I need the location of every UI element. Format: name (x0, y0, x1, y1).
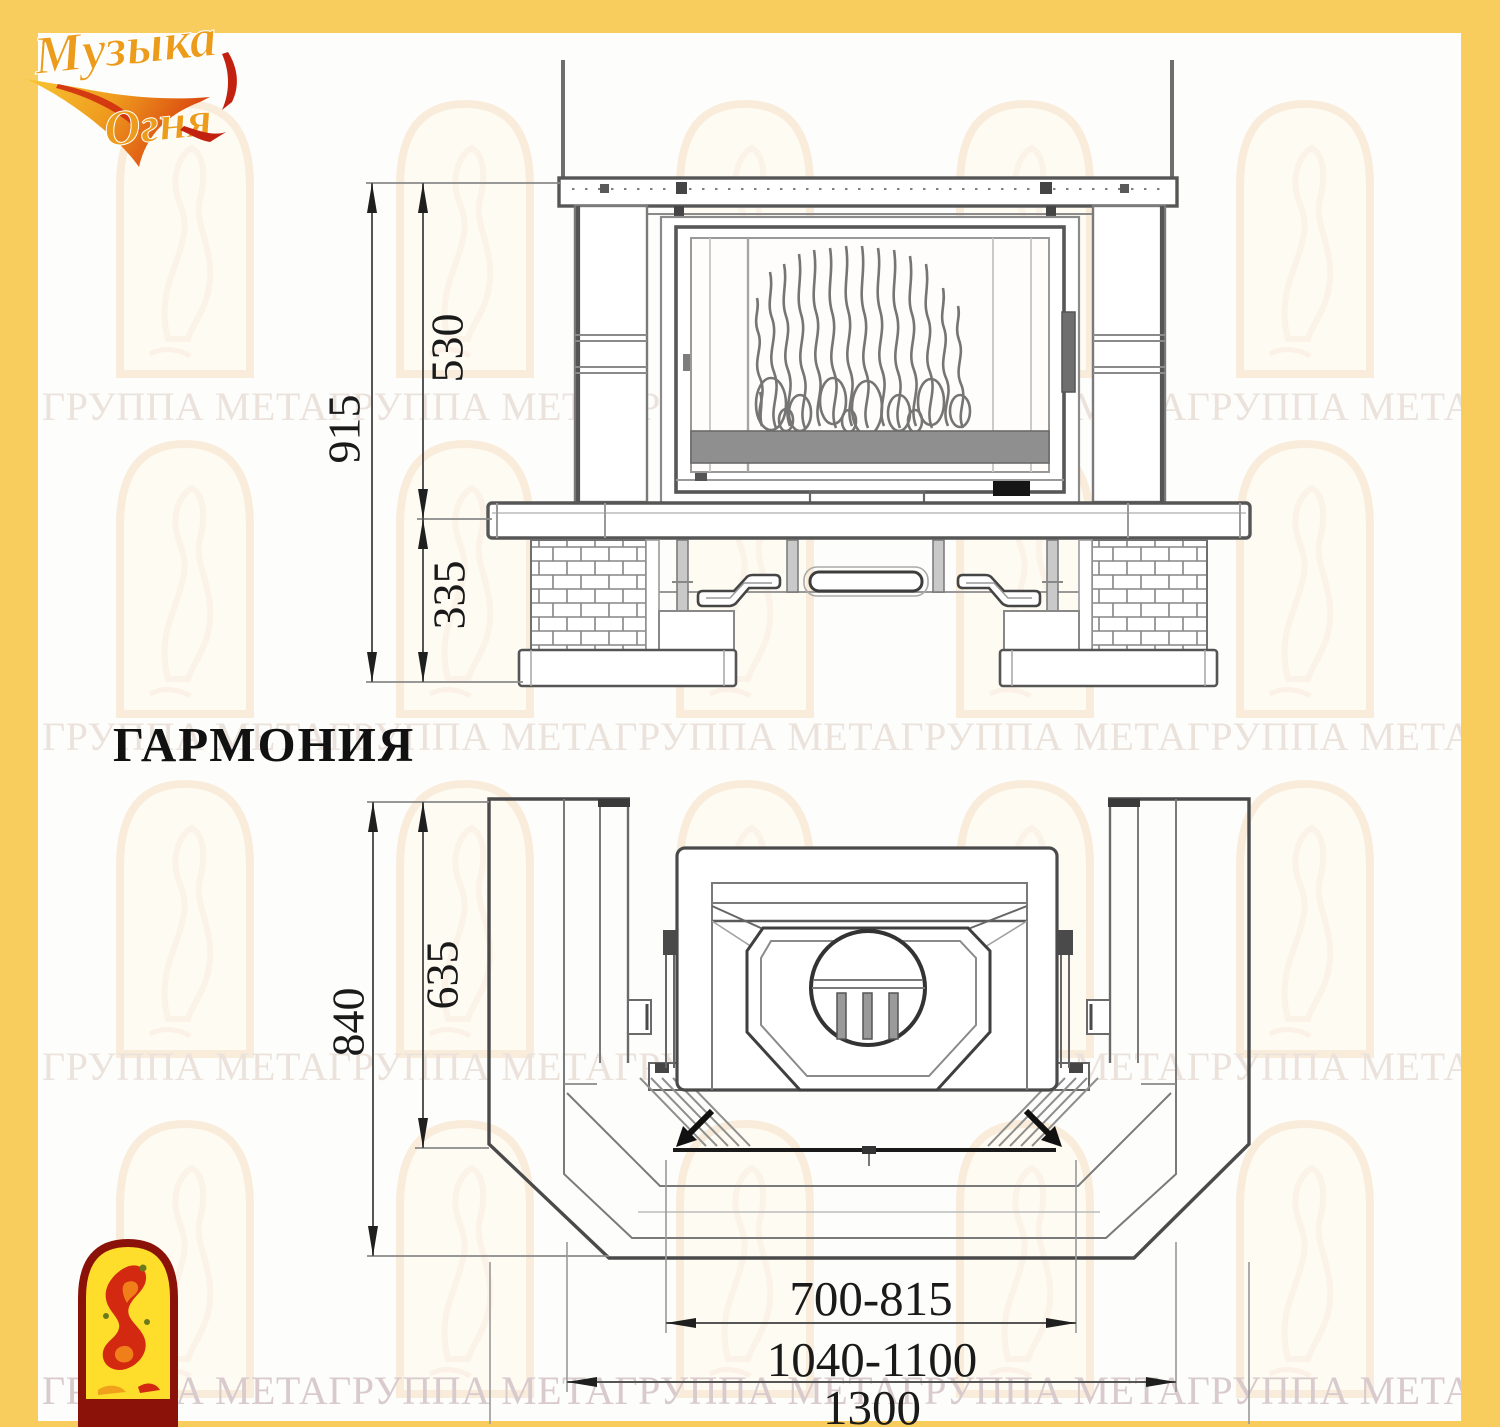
svg-text:635: 635 (417, 941, 468, 1010)
svg-text:ГРУППА МЕТАГРУППА МЕТАГРУППА М: ГРУППА МЕТАГРУППА МЕТАГРУППА МЕТАГРУППА … (42, 1368, 1473, 1413)
svg-text:915: 915 (319, 395, 370, 464)
svg-text:ГАРМОНИЯ: ГАРМОНИЯ (113, 717, 415, 772)
svg-text:700-815: 700-815 (789, 1271, 952, 1326)
svg-text:Огня: Огня (101, 90, 214, 157)
svg-text:1300: 1300 (823, 1380, 921, 1427)
svg-text:1040-1100: 1040-1100 (767, 1332, 978, 1387)
svg-text:840: 840 (323, 988, 374, 1057)
svg-text:335: 335 (424, 561, 475, 630)
svg-text:530: 530 (422, 314, 473, 383)
